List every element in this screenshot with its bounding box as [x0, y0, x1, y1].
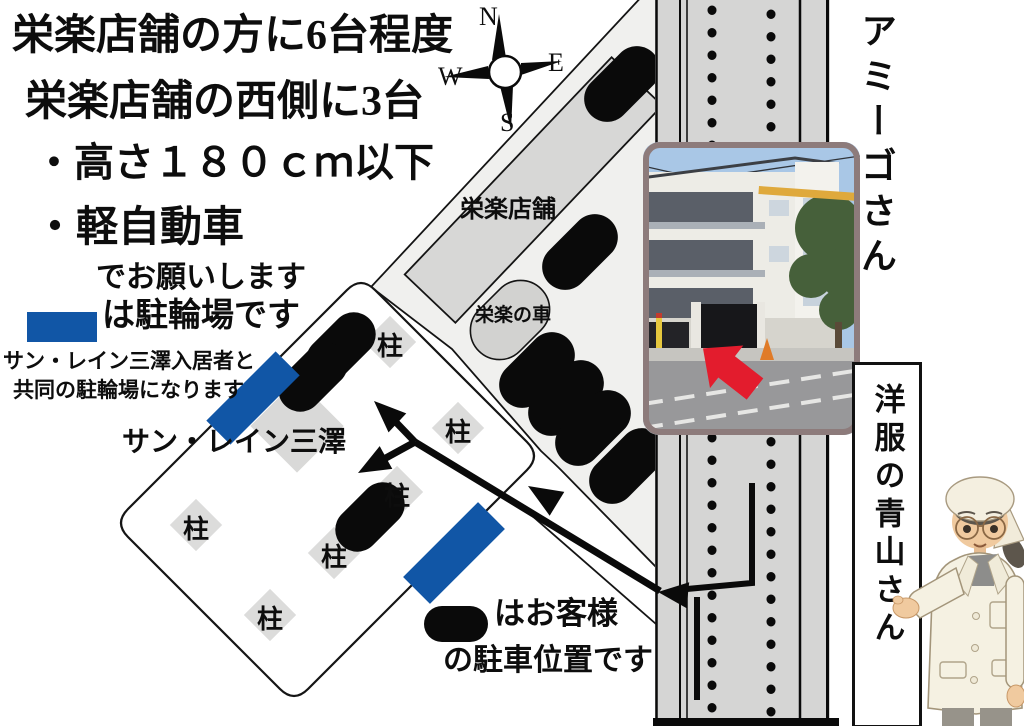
eiraku-store-label: 栄楽店舗: [460, 198, 556, 223]
staff-character-illustration: [876, 456, 1024, 726]
instruction-line-1: 栄楽店舗の方に6台程度: [12, 14, 453, 58]
pillar-label: 柱: [445, 412, 471, 449]
customer-legend-line-2: の駐車位置です: [443, 645, 653, 677]
eiraku-car-label: 栄楽の車: [475, 306, 551, 326]
neighbor-amigo-label: アミーゴさん: [850, 12, 902, 282]
parking-map-flyer: 栄楽店舗の方に6台程度 栄楽店舗の西側に3台 ・高さ１８０ｃｍ以下 ・軽自動車 …: [0, 0, 1024, 726]
instruction-please: でお願いします: [96, 262, 306, 294]
instruction-line-2: 栄楽店舗の西側に3台: [25, 80, 424, 124]
bicycle-legend-note-2: 共同の駐輪場になります: [13, 379, 244, 401]
instruction-bullet-kei: ・軽自動車: [34, 206, 244, 250]
sun-rain-misawa-label: サン・レイン三澤: [122, 428, 346, 457]
compass-south-label: S: [500, 108, 514, 138]
customer-parking-swatch: [424, 606, 488, 642]
bicycle-parking-swatch: [27, 312, 97, 342]
pillar-label: 柱: [384, 476, 410, 513]
compass-west-label: W: [438, 62, 463, 92]
compass-east-label: E: [548, 48, 564, 78]
bicycle-legend-label: は駐輪場です: [102, 299, 300, 334]
compass-north-label: N: [479, 2, 498, 32]
instruction-bullet-height: ・高さ１８０ｃｍ以下: [34, 142, 434, 184]
pillar-label: 柱: [321, 537, 347, 574]
customer-legend-line-1: はお客様: [494, 598, 618, 631]
bicycle-legend-note-1: サン・レイン三澤入居者と: [3, 350, 255, 372]
street-photo: [641, 142, 877, 435]
pillar-label: 柱: [183, 509, 209, 546]
pillar-label: 柱: [257, 599, 283, 636]
pillar-label: 柱: [377, 326, 403, 363]
